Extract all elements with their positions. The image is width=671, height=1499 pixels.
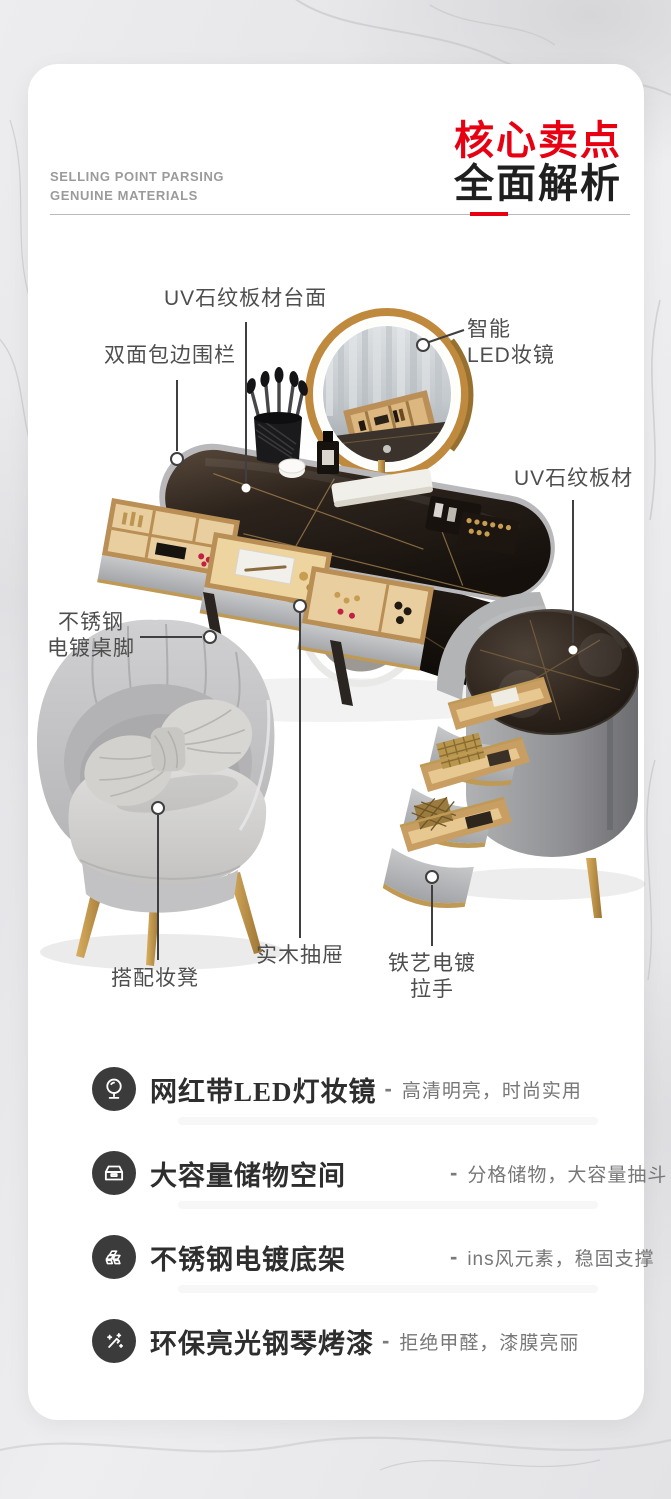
section-title: 核心卖点 全面解析 <box>454 120 622 206</box>
english-subtitle-line1: SELLING POINT PARSING <box>50 167 224 186</box>
paint-wand-icon <box>92 1319 136 1363</box>
feature-separator: - <box>450 1160 457 1186</box>
feature-separator: - <box>385 1076 392 1102</box>
feature-separator: - <box>382 1328 389 1354</box>
callout-tabletop-label: UV石纹板材台面 <box>164 286 327 312</box>
feature-description: 分格储物，大容量抽斗 <box>467 1160 667 1187</box>
english-subtitle-line2: GENUINE MATERIALS <box>50 186 224 205</box>
feature-title: 环保亮光钢琴烤漆 <box>150 1322 374 1361</box>
callout-led-mirror-label: 智能 LED妆镜 <box>467 317 555 369</box>
feature-list: 网红带LED灯妆镜 - 高清明亮，时尚实用 大容量储物空间 - 分格储物，大容量… <box>92 1047 608 1383</box>
callout-fence-label: 双面包边围栏 <box>104 343 236 369</box>
storage-drawer-icon <box>92 1151 136 1195</box>
feature-description: 拒绝甲醛，漆膜亮丽 <box>399 1328 579 1355</box>
section-title-black: 全面解析 <box>454 163 622 206</box>
feature-row-mirror: 网红带LED灯妆镜 - 高清明亮，时尚实用 <box>92 1047 608 1131</box>
callout-side-board-label: UV石纹板材 <box>514 466 633 492</box>
feature-row-paint: 环保亮光钢琴烤漆 - 拒绝甲醛，漆膜亮丽 <box>92 1299 608 1383</box>
gold-bars-icon <box>92 1235 136 1279</box>
feature-title: 大容量储物空间 <box>150 1154 442 1193</box>
product-detail-page: { "header": { "subtitle_line1": "SELLING… <box>0 0 671 1499</box>
callout-handle-label: 铁艺电镀 拉手 <box>384 951 480 1003</box>
feature-description: ins风元素，稳固支撑 <box>467 1244 654 1271</box>
content-card: SELLING POINT PARSING GENUINE MATERIALS … <box>28 64 644 1420</box>
english-subtitle: SELLING POINT PARSING GENUINE MATERIALS <box>50 167 224 205</box>
feature-title: 不锈钢电镀底架 <box>150 1238 442 1277</box>
feature-row-frame: 不锈钢电镀底架 - ins风元素，稳固支撑 <box>92 1215 608 1299</box>
feature-description: 高清明亮，时尚实用 <box>402 1076 582 1103</box>
callout-table-legs-label: 不锈钢 电镀桌脚 <box>44 610 138 662</box>
header-divider-accent <box>470 212 508 216</box>
feature-row-storage: 大容量储物空间 - 分格储物，大容量抽斗 <box>92 1131 608 1215</box>
feature-title: 网红带LED灯妆镜 <box>150 1070 377 1109</box>
header-divider <box>50 214 630 215</box>
feature-separator: - <box>450 1244 457 1270</box>
callout-drawer-label: 实木抽屉 <box>256 943 344 969</box>
section-title-red: 核心卖点 <box>454 120 622 163</box>
vanity-mirror-icon <box>92 1067 136 1111</box>
callout-stool-label: 搭配妆凳 <box>111 966 199 992</box>
